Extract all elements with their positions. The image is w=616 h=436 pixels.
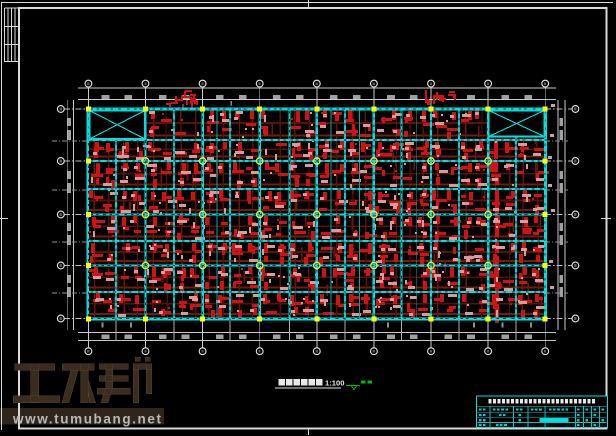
svg-text:www.tumubang.net: www.tumubang.net <box>12 411 163 426</box>
svg-text:1:100: 1:100 <box>325 379 344 388</box>
